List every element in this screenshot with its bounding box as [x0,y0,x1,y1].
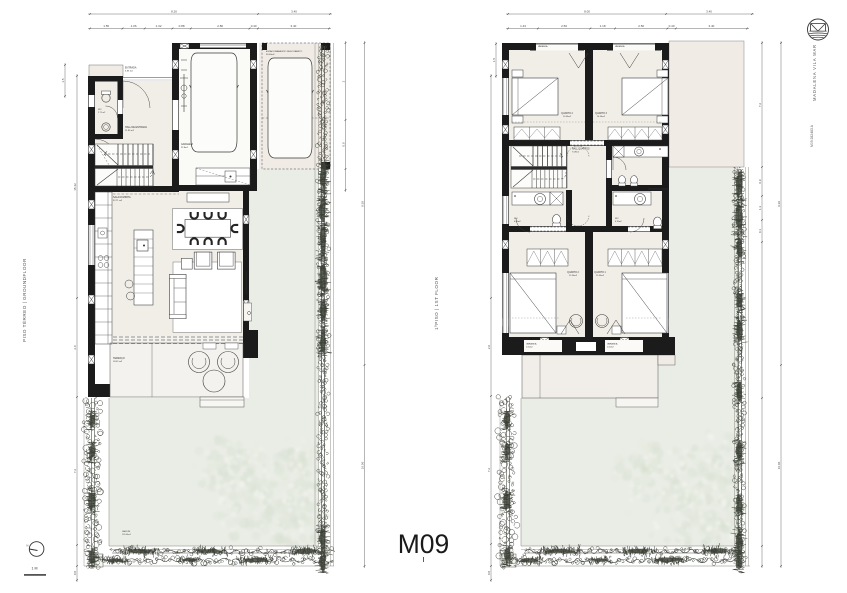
svg-text:7.2: 7.2 [758,103,762,108]
svg-text:VARANDA: VARANDA [615,45,625,48]
svg-text:1.5: 1.5 [492,58,496,63]
svg-text:HALL QUARTOS: HALL QUARTOS [572,148,590,151]
svg-text:16.06: 16.06 [360,461,364,469]
svg-text:WC: WC [98,109,102,111]
svg-text:QUARTO 2: QUARTO 2 [567,271,579,274]
svg-text:7.2: 7.2 [73,469,77,474]
svg-text:9.39: 9.39 [360,201,364,207]
svg-text:VARANDA: VARANDA [538,45,548,48]
svg-text:JARDIM: JARDIM [122,530,130,533]
svg-text:0.40: 0.40 [669,24,675,28]
svg-text:2.50: 2.50 [561,24,567,28]
svg-text:QUARTO 3: QUARTO 3 [595,112,607,115]
svg-text:0.40: 0.40 [251,24,257,28]
svg-text:PISO TÉRREO | GROUNDFLOOR: PISO TÉRREO | GROUNDFLOOR [21,258,27,342]
svg-text:10.50m2: 10.50m2 [563,116,572,118]
svg-text:18.52 m2: 18.52 m2 [113,361,123,363]
svg-text:30.00m2: 30.00m2 [266,54,275,56]
svg-text:QUARTO 1: QUARTO 1 [594,271,606,274]
svg-text:15.42: 15.42 [73,183,77,191]
svg-text:WC: WC [615,218,619,220]
svg-text:TERRAÇO: TERRAÇO [113,357,125,360]
svg-text:1.18: 1.18 [600,24,606,28]
svg-text:9.39: 9.39 [777,201,781,207]
svg-text:1 M: 1 M [32,567,38,571]
svg-text:N: N [27,544,29,548]
svg-text:MADALENA VILA MAR: MADALENA VILA MAR [812,44,817,101]
svg-text:16.06: 16.06 [777,461,781,469]
svg-text:ENTRADA: ENTRADA [125,67,137,70]
svg-text:1.50m2: 1.50m2 [526,347,534,349]
svg-text:14.50m2: 14.50m2 [597,116,606,118]
svg-text:1.06: 1.06 [131,24,137,28]
svg-text:1.55: 1.55 [103,24,109,28]
svg-text:4.90m2: 4.90m2 [514,221,522,223]
svg-text:QUARTO 4: QUARTO 4 [561,112,573,115]
svg-text:1.32: 1.32 [156,24,162,28]
svg-text:1.50m2: 1.50m2 [607,347,615,349]
svg-text:7.2: 7.2 [487,468,491,473]
svg-text:0.8: 0.8 [73,571,77,576]
svg-text:GARAGEM: GARAGEM [181,143,193,146]
svg-text:8.00: 8.00 [584,9,590,13]
svg-text:HALL DE ENTRADA: HALL DE ENTRADA [125,126,147,129]
svg-text:8.20: 8.20 [171,9,177,13]
svg-text:VARANDA: VARANDA [526,343,537,346]
svg-text:2.71 m2: 2.71 m2 [98,112,106,114]
svg-text:3.40: 3.40 [708,24,714,28]
svg-text:2.80: 2.80 [217,24,223,28]
svg-text:2.0: 2.0 [73,345,77,350]
svg-text:3.40: 3.40 [291,9,297,13]
svg-text:4.70m2: 4.70m2 [615,221,623,223]
svg-text:0.9: 0.9 [758,179,762,184]
svg-text:0.1: 0.1 [758,229,762,234]
svg-text:2.0: 2.0 [487,345,491,350]
svg-text:15.50m2: 15.50m2 [569,275,578,277]
svg-text:M09: M09 [398,529,450,559]
svg-text:0.9: 0.9 [341,142,345,147]
svg-text:3.40: 3.40 [290,24,296,28]
svg-text:1.43: 1.43 [520,24,526,28]
svg-text:22.8m2: 22.8m2 [181,147,189,149]
svg-text:52.71 m2: 52.71 m2 [113,200,123,202]
svg-text:1.3: 1.3 [758,206,762,211]
svg-text:105.00m2: 105.00m2 [122,534,132,536]
svg-text:6.95 m2: 6.95 m2 [125,71,134,73]
svg-text:1.5: 1.5 [61,78,65,83]
svg-text:15.50m2: 15.50m2 [596,275,605,277]
svg-text:1ºPISO | 1ST FLOOR: 1ºPISO | 1ST FLOOR [434,276,439,330]
svg-text:0.88: 0.88 [179,24,185,28]
svg-text:SALA/COZINHA: SALA/COZINHA [113,196,131,199]
svg-text:M09 282483 A: M09 282483 A [810,124,814,147]
svg-text:2.50: 2.50 [638,24,644,28]
svg-text:7.09m2: 7.09m2 [572,152,580,154]
svg-text:0.8: 0.8 [487,571,491,576]
svg-text:VARANDA: VARANDA [607,343,618,346]
svg-text:11.95 m2: 11.95 m2 [125,130,135,132]
svg-text:ESTACIONAMENTO DESCOBERTO: ESTACIONAMENTO DESCOBERTO [266,50,302,53]
svg-text:3.40: 3.40 [706,9,712,13]
